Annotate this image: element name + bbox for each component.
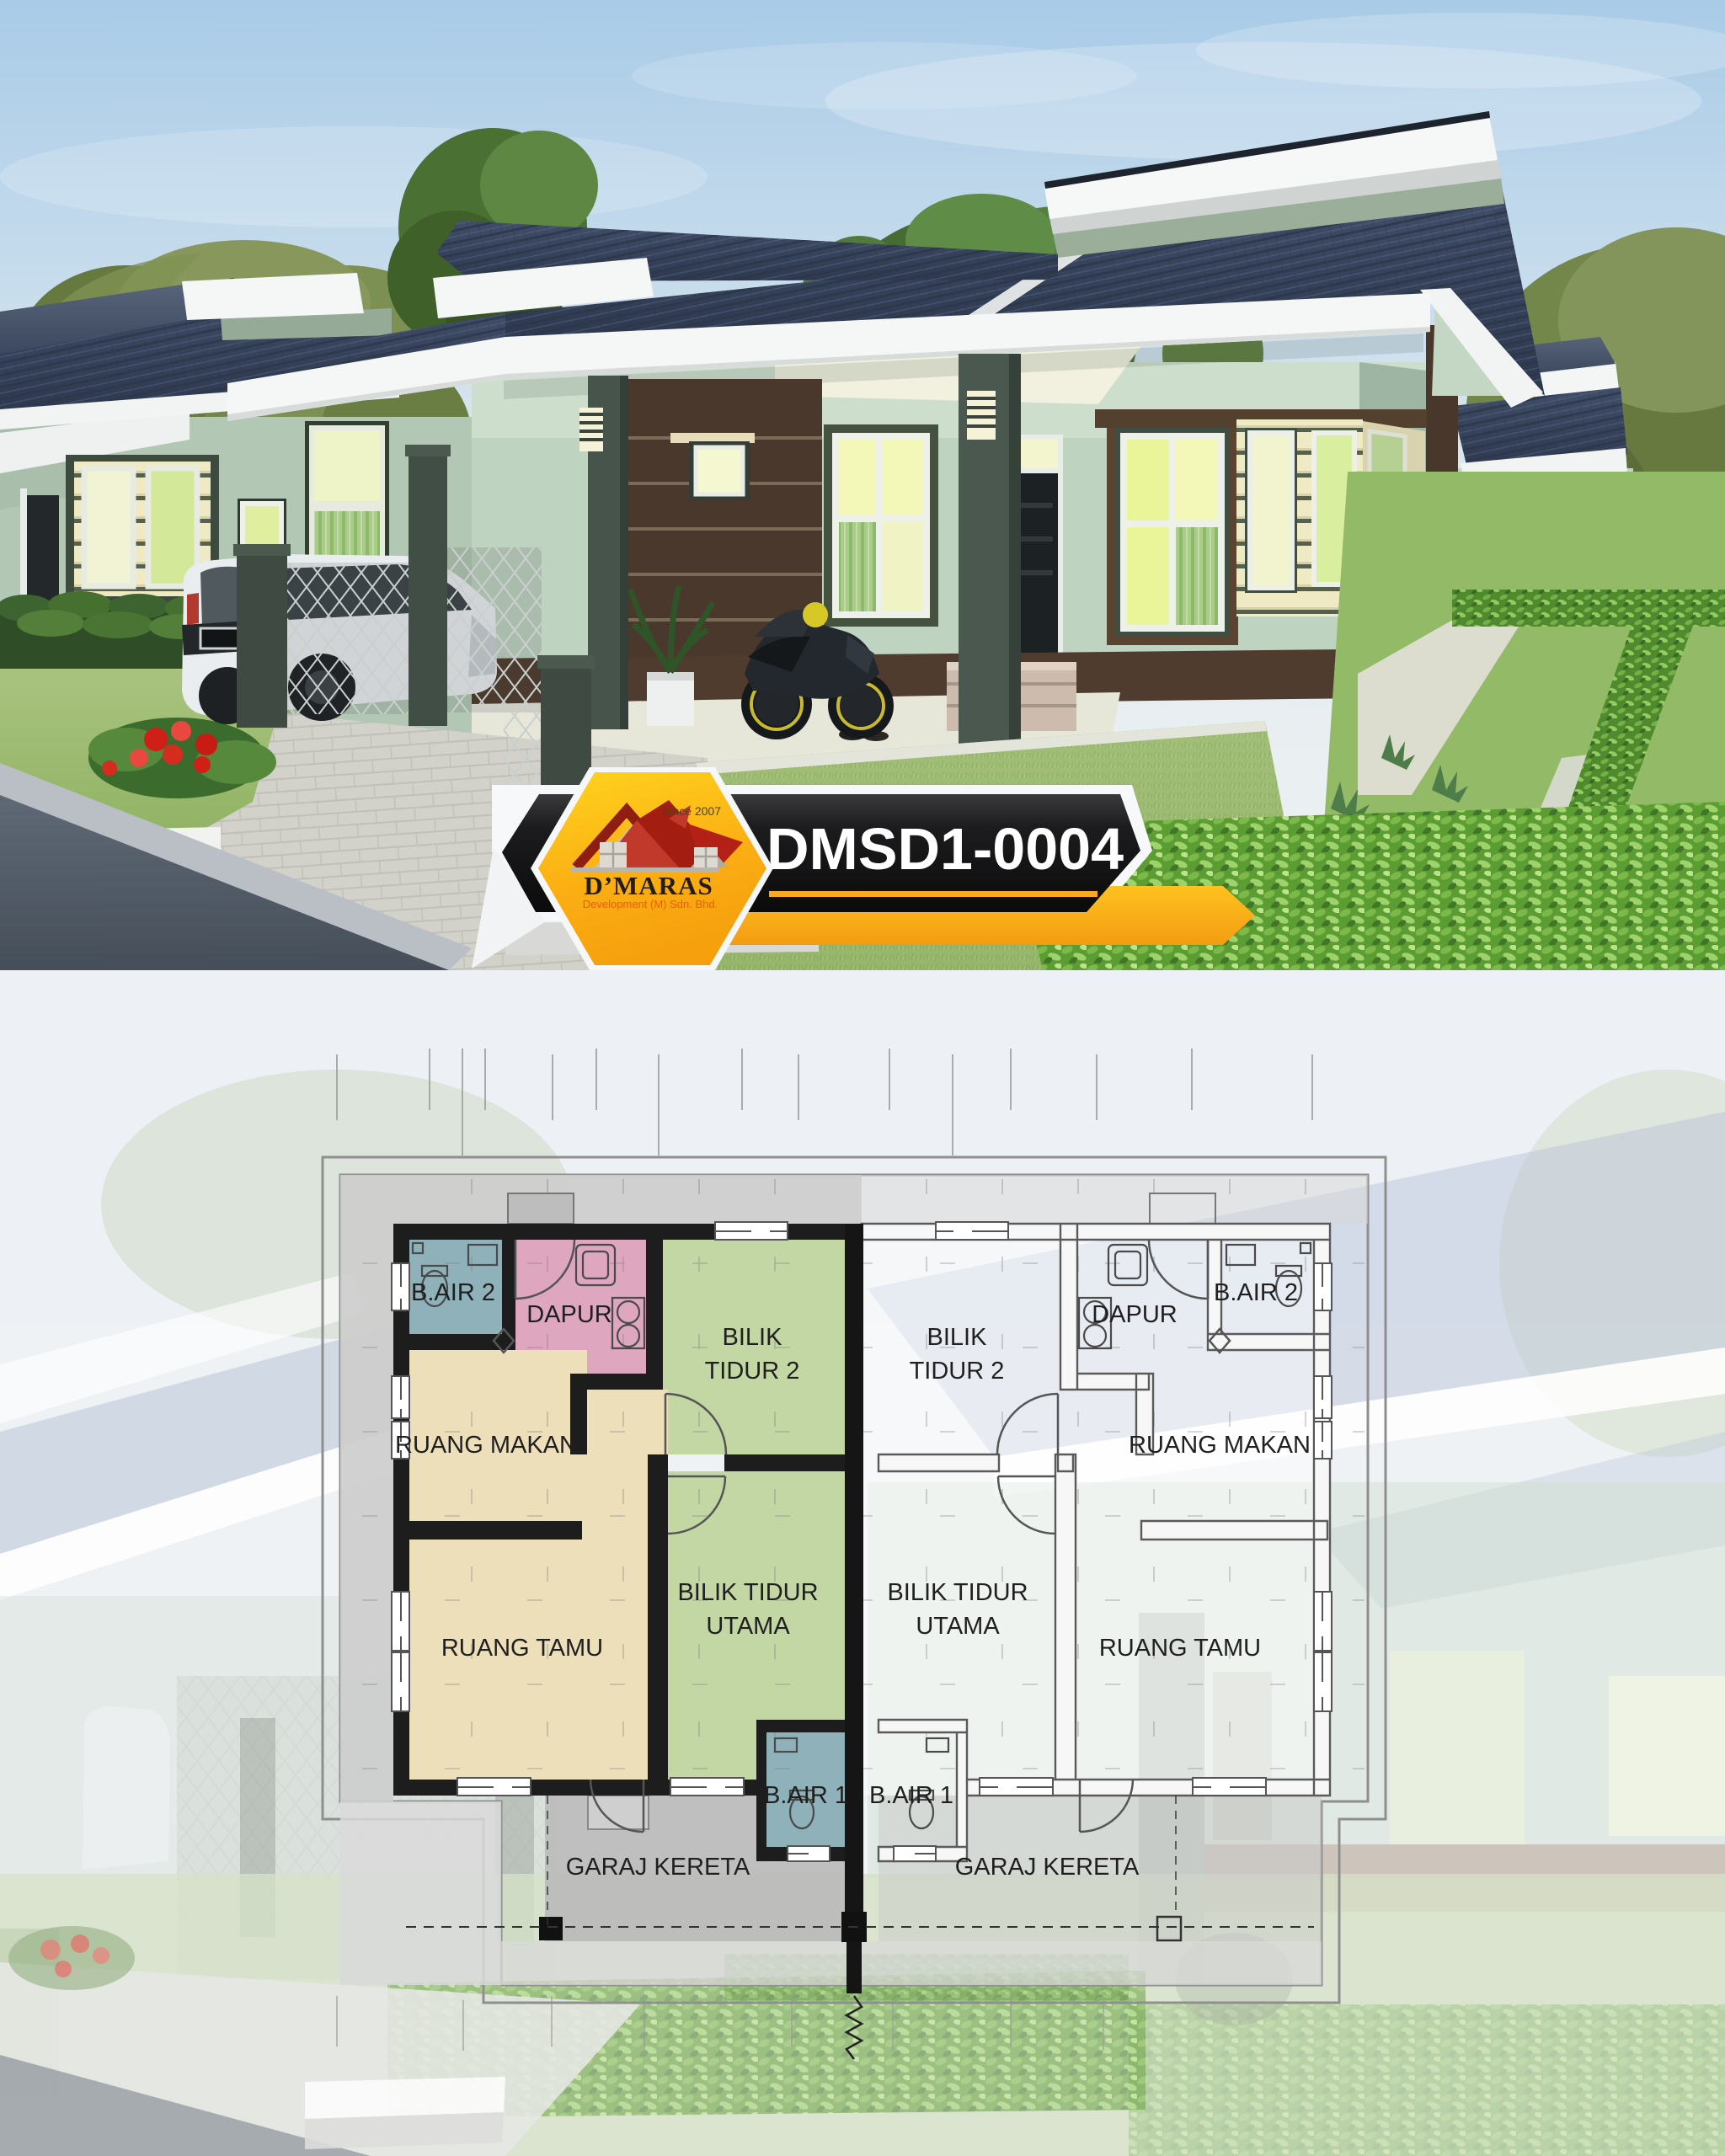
svg-text:B.AIR 2: B.AIR 2: [411, 1279, 495, 1306]
svg-text:BILIK: BILIK: [927, 1324, 988, 1351]
svg-text:RUANG TAMU: RUANG TAMU: [441, 1635, 603, 1662]
svg-text:Since 2007: Since 2007: [662, 804, 721, 818]
svg-text:UTAMA: UTAMA: [916, 1613, 1000, 1640]
svg-text:BILIK: BILIK: [723, 1324, 783, 1351]
svg-text:Development (M) Sdn. Bhd.: Development (M) Sdn. Bhd.: [583, 898, 718, 910]
svg-text:BILIK TIDUR: BILIK TIDUR: [887, 1579, 1028, 1606]
svg-text:RUANG MAKAN: RUANG MAKAN: [1129, 1432, 1311, 1459]
svg-text:GARAJ KERETA: GARAJ KERETA: [955, 1854, 1140, 1881]
svg-text:B.AIR 1: B.AIR 1: [869, 1782, 953, 1809]
svg-text:D’MARAS: D’MARAS: [584, 871, 713, 900]
svg-text:TIDUR 2: TIDUR 2: [705, 1358, 800, 1385]
svg-text:RUANG TAMU: RUANG TAMU: [1099, 1635, 1261, 1662]
svg-text:DAPUR: DAPUR: [526, 1301, 612, 1328]
svg-text:B.AIR 2: B.AIR 2: [1214, 1279, 1298, 1306]
svg-text:B.AIR 1: B.AIR 1: [764, 1782, 848, 1809]
svg-text:DAPUR: DAPUR: [1092, 1301, 1178, 1328]
svg-text:GARAJ KERETA: GARAJ KERETA: [566, 1854, 750, 1881]
svg-text:TIDUR 2: TIDUR 2: [910, 1358, 1005, 1385]
svg-text:RUANG MAKAN: RUANG MAKAN: [395, 1432, 577, 1459]
svg-text:UTAMA: UTAMA: [706, 1613, 790, 1640]
svg-text:BILIK TIDUR: BILIK TIDUR: [677, 1579, 818, 1606]
svg-text:DMSD1-0004: DMSD1-0004: [766, 816, 1124, 882]
